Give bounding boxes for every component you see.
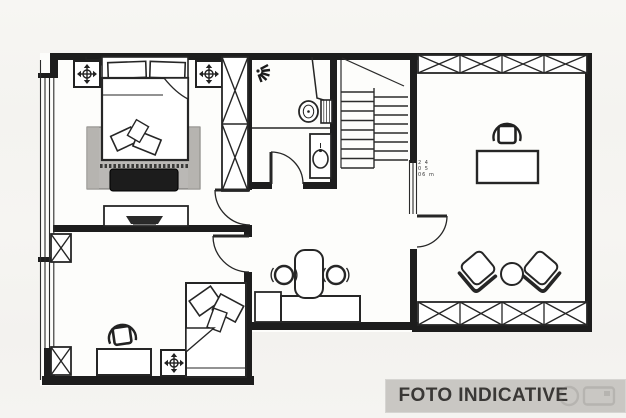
floorplan-photo: 2 4 0 5 06 m FOTO INDICATIVE xyxy=(0,0,626,418)
foto-indicative-banner: FOTO INDICATIVE xyxy=(385,379,626,413)
desk xyxy=(97,349,151,375)
watermark-camera-icon xyxy=(558,384,620,408)
stair-area-note: 2 4 0 5 06 m xyxy=(418,160,444,178)
dresser xyxy=(104,206,188,226)
pillar-top xyxy=(51,234,71,262)
wardrobe-top xyxy=(418,55,587,73)
floorplan-drawing xyxy=(0,0,626,418)
banner-label: FOTO INDICATIVE xyxy=(399,385,569,407)
office-chair xyxy=(494,124,521,143)
double-bed xyxy=(102,57,188,160)
pillar-bottom xyxy=(51,347,71,375)
wardrobe-bottom xyxy=(418,302,587,325)
wardrobe xyxy=(222,57,248,191)
ceiling-fixture-icon xyxy=(161,350,187,376)
bed-bench xyxy=(110,169,178,191)
ceiling-fixture-icon xyxy=(196,61,222,87)
sink-icon xyxy=(310,134,331,178)
side-table xyxy=(501,263,523,285)
area-note-line: 06 m xyxy=(418,172,444,178)
toilet-icon xyxy=(299,100,332,123)
single-bed xyxy=(186,283,246,377)
desk xyxy=(477,151,538,183)
vanity-chair xyxy=(295,250,323,298)
ceiling-fixture-icon xyxy=(74,61,100,87)
